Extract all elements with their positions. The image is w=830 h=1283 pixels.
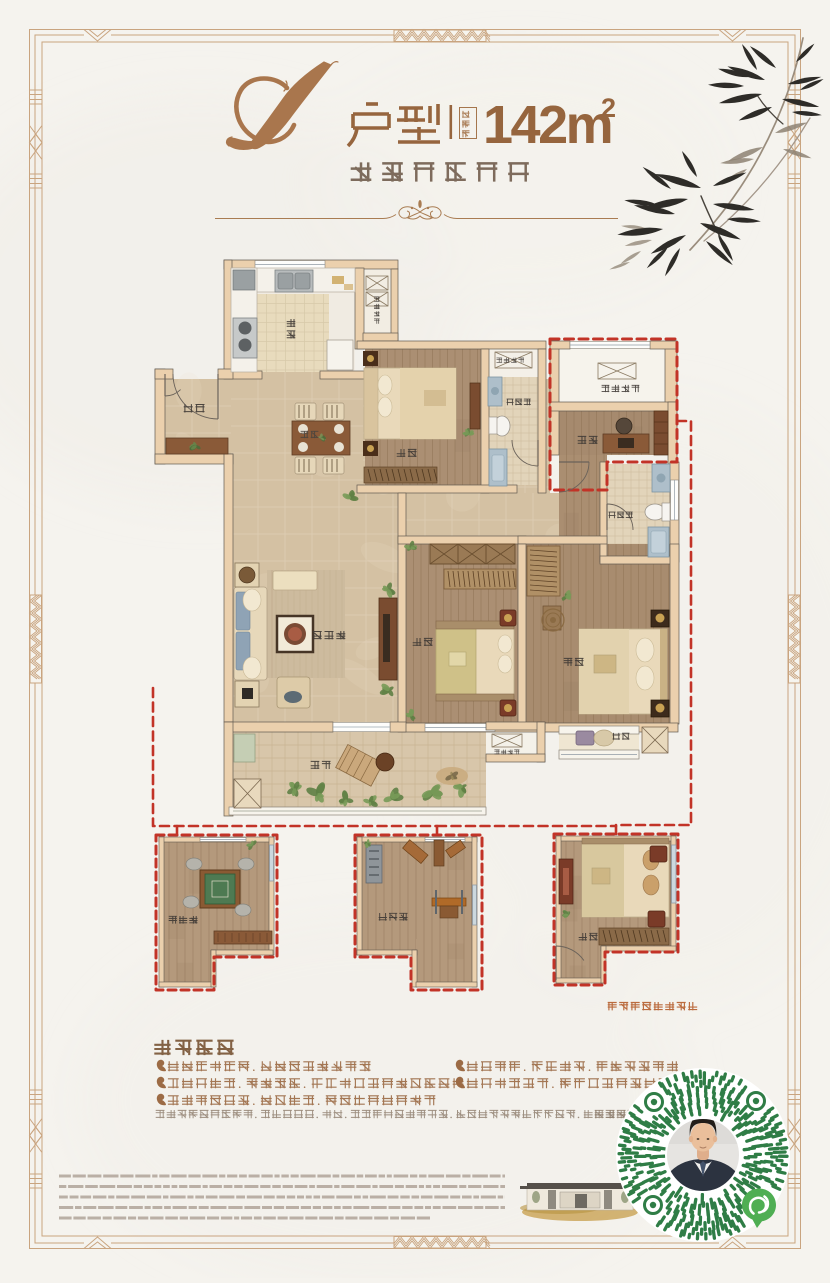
svg-text:2: 2 xyxy=(601,93,616,123)
svg-text:142m: 142m xyxy=(483,95,611,155)
